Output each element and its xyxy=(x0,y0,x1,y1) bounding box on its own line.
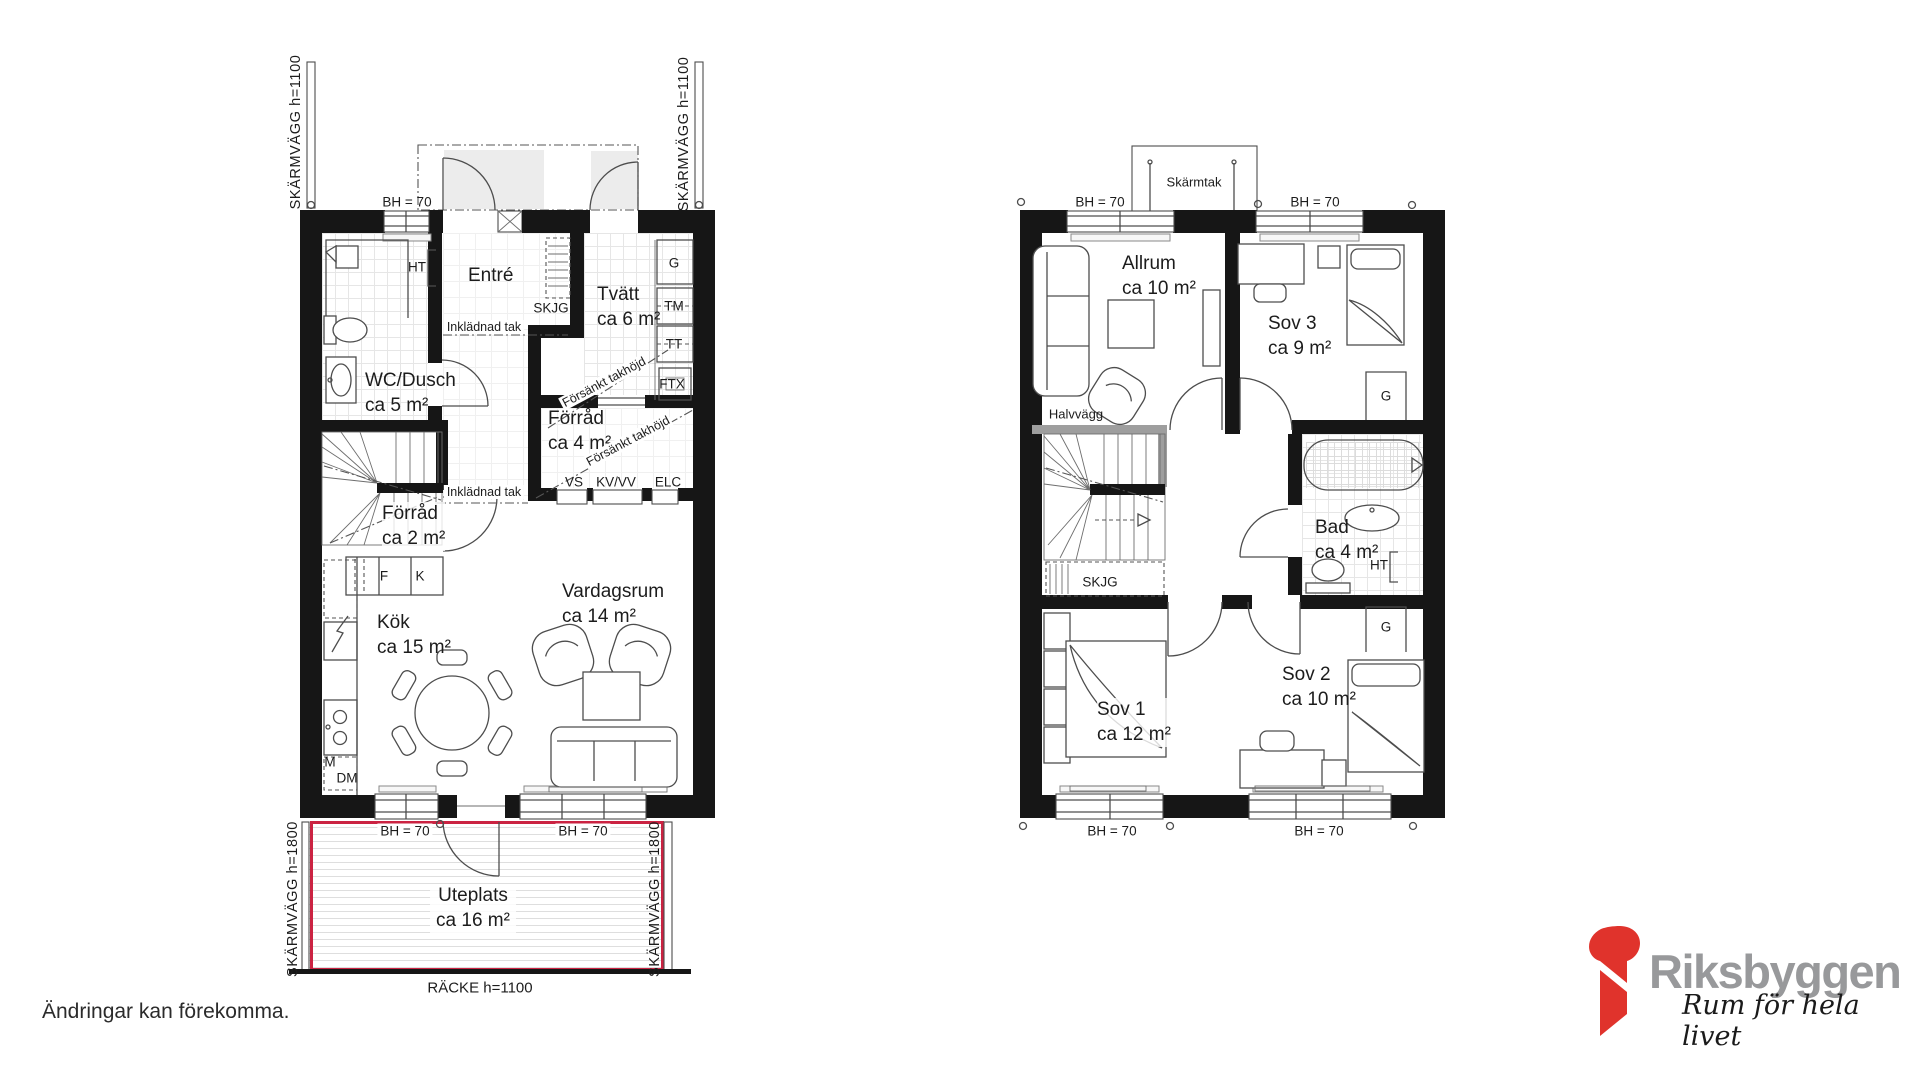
room-label-wc-dusch: WC/Dusch ca 5 m² xyxy=(365,369,456,418)
floor1-closet-row xyxy=(346,557,443,595)
floor1-dining-set xyxy=(390,650,514,776)
label-tm-f1: TM xyxy=(664,299,684,314)
label-skarmvagg-1800-right: SKÄRMVÄGG h=1800 xyxy=(647,821,663,977)
room-label-vardagsrum: Vardagsrum ca 14 m² xyxy=(562,580,664,629)
label-elc: ELC xyxy=(655,475,681,490)
label-ht-f2: HT xyxy=(1370,558,1388,573)
label-dm: DM xyxy=(337,771,358,786)
label-g-f1: G xyxy=(669,256,680,271)
room-label-sov3: Sov 3 ca 9 m² xyxy=(1268,312,1331,361)
label-kv-vv: KV/VV xyxy=(596,475,636,490)
label-bh70-f2-top-right: BH = 70 xyxy=(1290,195,1339,210)
room-label-forrad-2: Förråd ca 2 m² xyxy=(382,502,445,551)
label-g-sov2: G xyxy=(1381,620,1392,635)
floor1-shaft-boxes xyxy=(557,490,678,504)
label-vs: VS xyxy=(565,475,583,490)
label-m: M xyxy=(324,755,335,770)
room-label-kok: Kök ca 15 m² xyxy=(377,611,451,660)
floorplan-sheet: SKÄRMVÄGG h=1100 SKÄRMVÄGG h=1100 BH = 7… xyxy=(0,0,1920,1080)
label-ftx-f1: FTX xyxy=(659,377,685,392)
label-skarmvagg-1100-right: SKÄRMVÄGG h=1100 xyxy=(676,57,692,212)
floor2-stair xyxy=(1044,434,1165,560)
label-skarmvagg-1100-left: SKÄRMVÄGG h=1100 xyxy=(288,55,304,210)
label-inkladnad-tak-1: Inklädnad tak xyxy=(444,320,524,334)
label-bh70-f2-bottom-right: BH = 70 xyxy=(1294,824,1343,839)
label-bh70-f2-top-left: BH = 70 xyxy=(1075,195,1124,210)
disclaimer-text: Ändringar kan förekomma. xyxy=(42,1000,289,1024)
label-halvvagg: Halvvägg xyxy=(1049,407,1103,422)
label-tt-f1: TT xyxy=(666,337,683,352)
room-label-bad: Bad ca 4 m² xyxy=(1315,516,1378,565)
riksbyggen-tagline: Rum för hela livet xyxy=(1682,990,1920,1052)
room-label-entre: Entré xyxy=(468,264,513,289)
label-inkladnad-tak-2: Inklädnad tak xyxy=(444,485,524,499)
label-ht-f1: HT xyxy=(408,260,426,275)
label-skjg-f2: SKJG xyxy=(1082,575,1117,590)
label-bh70-f1-bottom-left: BH = 70 xyxy=(377,824,432,839)
room-label-uteplats: Uteplats ca 16 m² xyxy=(430,884,516,933)
label-bh70-f1-top: BH = 70 xyxy=(382,195,431,210)
room-label-tvatt: Tvätt ca 6 m² xyxy=(597,283,660,332)
room-label-sov1: Sov 1 ca 12 m² xyxy=(1097,698,1171,747)
label-bh70-f1-bottom-right: BH = 70 xyxy=(555,824,610,839)
room-label-sov2: Sov 2 ca 10 m² xyxy=(1282,663,1356,712)
floor1-screen-walls xyxy=(289,62,703,974)
room-label-allrum: Allrum ca 10 m² xyxy=(1122,252,1196,301)
label-skjg-f1: SKJG xyxy=(533,301,568,316)
floor1-skjg-closet xyxy=(546,238,570,298)
label-k: K xyxy=(415,569,424,584)
label-g-sov3: G xyxy=(1381,389,1392,404)
riksbyggen-logo: Riksbyggen Rum för hela livet xyxy=(1583,922,1920,1042)
floor1-livingroom-furniture xyxy=(528,620,677,792)
floor2-plan xyxy=(1018,146,1446,830)
label-skarmtak: Skärmtak xyxy=(1167,175,1222,190)
label-racke-1100: RÄCKE h=1100 xyxy=(427,980,532,997)
label-bh70-f2-bottom-left: BH = 70 xyxy=(1087,824,1136,839)
label-f: F xyxy=(380,569,388,584)
label-skarmvagg-1800-left: SKÄRMVÄGG h=1800 xyxy=(285,821,301,977)
